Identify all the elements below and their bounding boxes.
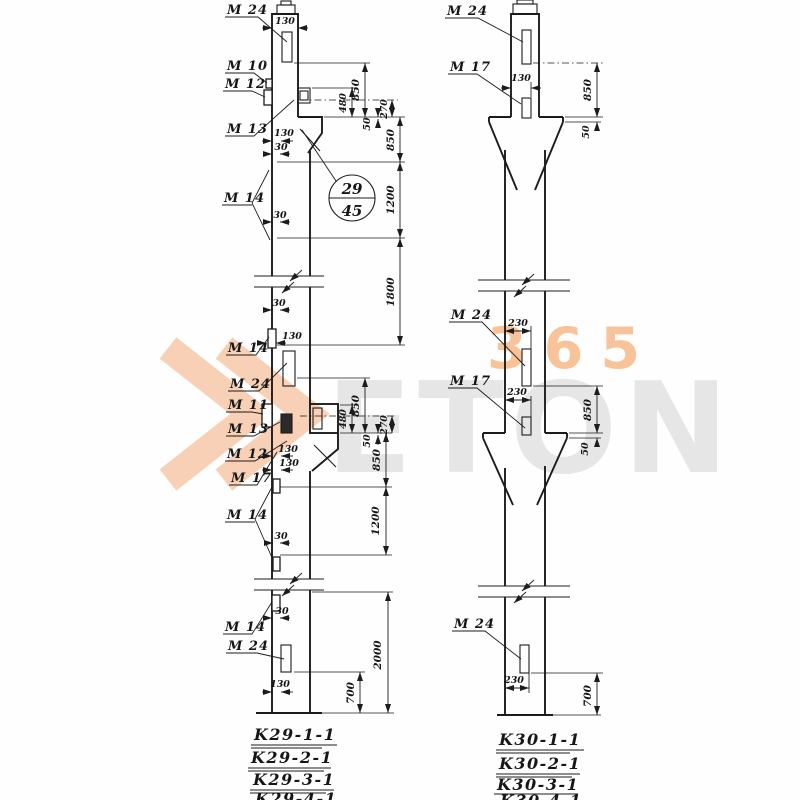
callout-m24-bottom: M 24 xyxy=(227,639,269,654)
dim-30-bottom: 30 xyxy=(275,606,289,617)
callout-m13-mid: M 13 xyxy=(227,422,269,437)
dim-850-top: 850 xyxy=(582,78,594,101)
series-label: K30-1-1 xyxy=(498,730,581,749)
callout-m24-bottom: M 24 xyxy=(453,617,495,632)
callout-m17-mid: M 17 xyxy=(449,374,491,389)
series-label: K29-4-1 xyxy=(254,789,337,800)
callout-m14-lower: M 14 xyxy=(226,508,268,523)
callout-m12: M 12 xyxy=(224,77,266,92)
dim-30-mid: 30 xyxy=(272,298,286,309)
detail-number: 29 xyxy=(341,180,363,198)
dim-130-joint: 130 xyxy=(279,458,299,469)
callout-m17: M 17 xyxy=(230,471,272,486)
callout-m17-top: M 17 xyxy=(449,60,491,75)
dim-850b-mid: 850 xyxy=(371,448,383,471)
callout-m24: M 24 xyxy=(226,3,268,18)
dim-30-lower: 30 xyxy=(274,531,288,542)
dim-130-mid: 130 xyxy=(282,331,302,342)
callout-m24-mid: M 24 xyxy=(229,377,271,392)
dim-270-top: 270 xyxy=(379,99,390,120)
drawing-sheet: ETON 365 xyxy=(0,0,800,800)
callout-m11: M 11 xyxy=(227,398,269,413)
series-label: K30-2-1 xyxy=(498,754,581,773)
column-elevation-drawing: ETON 365 xyxy=(0,0,800,800)
dim-700-bottom: 700 xyxy=(582,684,594,707)
dim-230-m24: 230 xyxy=(507,318,528,329)
dim-30-plate: 30 xyxy=(273,210,287,221)
series-label: K29-2-1 xyxy=(250,748,333,767)
dim-30-plate: 30 xyxy=(274,142,288,153)
right-series-labels: K30-1-1 K30-2-1 K30-3-1 K30-4-1 xyxy=(494,730,584,800)
dim-230-m17: 230 xyxy=(506,387,527,398)
dim-2000: 2000 xyxy=(372,640,384,671)
callout-m24-top: M 24 xyxy=(446,4,488,19)
dim-480-mid: 480 xyxy=(338,409,349,429)
callout-m12-mid: M 12 xyxy=(226,447,268,462)
left-series-labels: K29-1-1 K29-2-1 K29-3-1 K29-4-1 xyxy=(248,725,337,800)
dim-130-neck: 130 xyxy=(511,73,531,84)
dim-850-mid: 850 xyxy=(582,398,594,421)
dim-50-top: 50 xyxy=(581,125,592,139)
callout-m24-mid: M 24 xyxy=(450,308,492,323)
dim-130-plate: 130 xyxy=(274,128,294,139)
series-label: K29-1-1 xyxy=(253,725,336,744)
dim-50-top: 50 xyxy=(362,117,373,131)
dim-130-joint: 130 xyxy=(278,444,298,455)
dim-1800: 1800 xyxy=(385,277,397,307)
series-label: K29-3-1 xyxy=(252,770,335,789)
dim-1200-mid: 1200 xyxy=(370,506,382,536)
dim-480-top: 480 xyxy=(338,93,349,113)
dim-700: 700 xyxy=(345,681,357,704)
dim-270-mid: 270 xyxy=(379,415,390,436)
dim-50-mid: 50 xyxy=(362,434,373,448)
dim-850b-top: 850 xyxy=(385,128,397,151)
dim-1200-top: 1200 xyxy=(385,185,397,215)
callout-m10: M 10 xyxy=(226,59,268,74)
dim-neck-width: 130 xyxy=(275,16,295,27)
callout-m14-mid: M 14 xyxy=(227,341,269,356)
dim-130-bottom: 130 xyxy=(270,679,290,690)
callout-m14: M 14 xyxy=(223,191,265,206)
detail-sheet: 45 xyxy=(342,202,363,220)
dim-50-mid: 50 xyxy=(580,442,591,456)
series-label: K30-4-1 xyxy=(499,791,582,800)
dim-230-bottom: 230 xyxy=(503,675,524,686)
